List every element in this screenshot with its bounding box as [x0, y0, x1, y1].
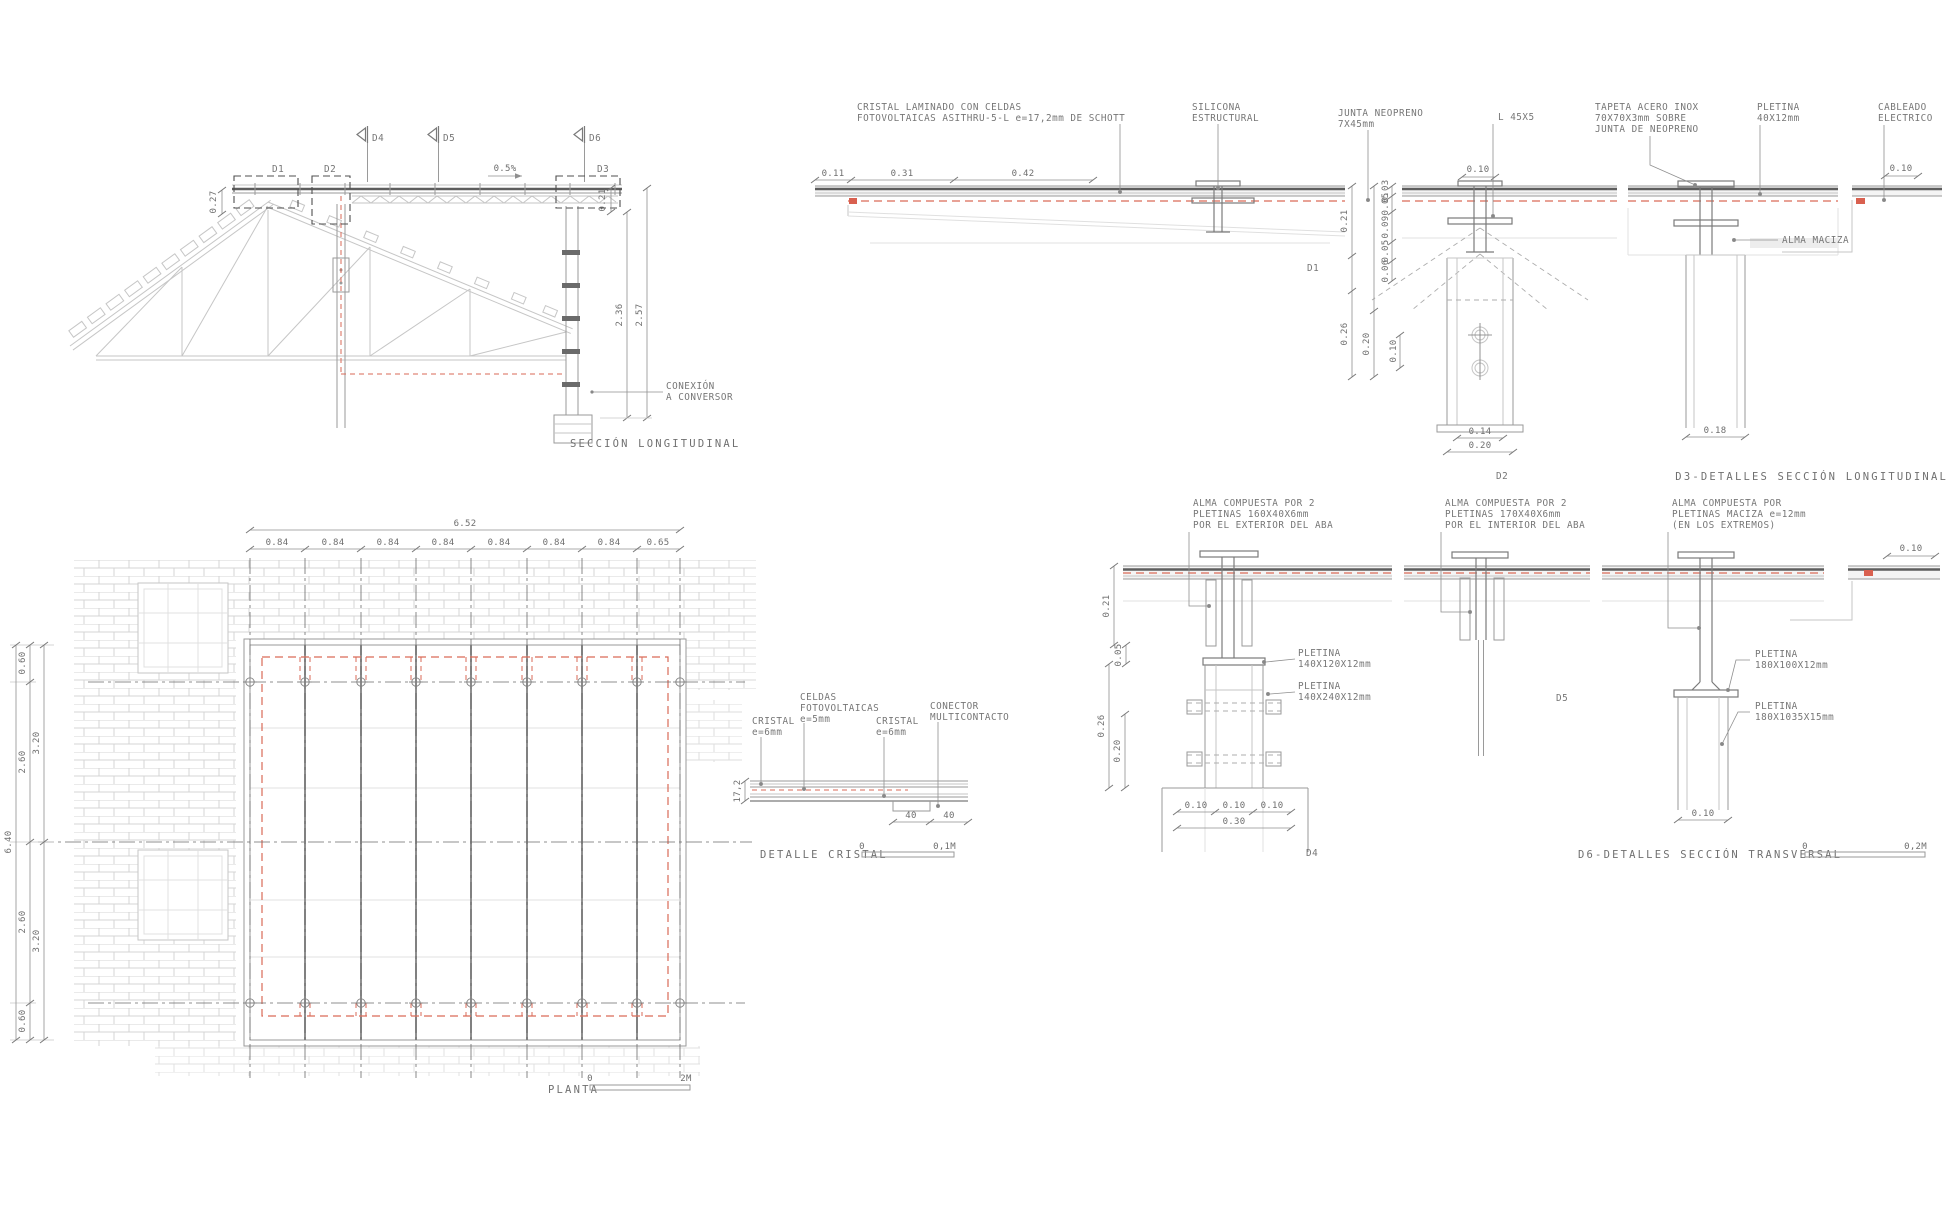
- dim-bay: 0.84: [266, 538, 289, 548]
- detail-boxes: D1 D2 D3: [234, 164, 620, 224]
- scale-end: 0,1M: [933, 842, 956, 852]
- skylight: [244, 639, 686, 1046]
- label-cristal-laminado-1: CRISTAL LAMINADO CON CELDAS: [857, 102, 1022, 113]
- detalles-seccion-longitudinal: CRISTAL LAMINADO CON CELDAS FOTOVOLTAICA…: [811, 102, 1948, 483]
- label-d5: D5: [1556, 693, 1568, 704]
- label-pletina-140-240-1: PLETINA: [1298, 681, 1341, 692]
- label-alma-int-3: POR EL INTERIOR DEL ABA: [1445, 520, 1585, 531]
- dim-left: 0.27: [209, 191, 219, 214]
- dim-010: 0.10: [1467, 165, 1490, 175]
- flag-d6-label: D6: [589, 133, 601, 144]
- label-celdas-3: e=5mm: [800, 714, 831, 725]
- scale-zero: 0: [587, 1074, 593, 1084]
- dim-half: 2.60: [18, 751, 28, 774]
- label-alma-mac-1: ALMA COMPUESTA POR: [1672, 498, 1782, 509]
- detalle-cristal: CELDAS FOTOVOLTAICAS e=5mm CRISTAL e=6mm…: [733, 692, 1009, 861]
- label-alma-ext-3: POR EL EXTERIOR DEL ABA: [1193, 520, 1333, 531]
- label-silicona-2: ESTRUCTURAL: [1192, 113, 1259, 124]
- dim-total-height: 6.40: [4, 831, 14, 854]
- dim-020: 0.20: [1362, 333, 1372, 356]
- column-symbols: [243, 675, 687, 1010]
- rafter-right: [266, 192, 577, 334]
- flag-d5-label: D5: [443, 133, 455, 144]
- label-tapeta-1: TAPETA ACERO INOX: [1595, 102, 1699, 113]
- planta-dims-top: 6.52 0.84 0.84 0.84 0.84 0.84 0.84 0.84 …: [246, 519, 684, 552]
- dim-010: 0.10: [1900, 544, 1923, 554]
- column-d3: [554, 206, 592, 443]
- dim-edge: 0.60: [18, 1010, 28, 1033]
- label-d2: D2: [1496, 471, 1508, 482]
- dim-edge: 0.60: [18, 652, 28, 675]
- planta-caption-group: PLANTA 0 2M: [548, 1074, 692, 1096]
- dim-mid: 3.20: [32, 732, 42, 755]
- dim-020: 0.20: [1469, 441, 1492, 451]
- label-pletina-1: PLETINA: [1757, 102, 1800, 113]
- d1-glass-segment: [815, 186, 1345, 243]
- row2-caption-group: D6-DETALLES SECCIÓN TRANSVERSAL 0 0,2M: [1578, 842, 1927, 861]
- seccion-longitudinal: D4 D5 D6 D1 D2 D3 0.5% 0.27 0.21 2.36 2.…: [62, 126, 740, 450]
- d6-detail: [1602, 552, 1824, 810]
- dim-bay: 0.84: [322, 538, 345, 548]
- label-pletina-2: 40X12mm: [1757, 113, 1800, 124]
- dim-mid: 3.20: [32, 930, 42, 953]
- conexion-annotation: CONEXIÓN A CONVERSOR: [590, 380, 733, 403]
- label-pletina-140-240-2: 140X240X12mm: [1298, 692, 1371, 703]
- dim-glass-depth: 0.21: [598, 189, 608, 212]
- dim-bay: 0.84: [488, 538, 511, 548]
- label-cristal-left-2: e=6mm: [752, 727, 783, 738]
- scale-zero: 0: [859, 842, 865, 852]
- section-caption: SECCIÓN LONGITUDINAL: [570, 437, 740, 450]
- dim-40: 40: [943, 811, 954, 821]
- label-alma-mac-3: (EN LOS EXTREMOS): [1672, 520, 1776, 531]
- label-alma-ext-1: ALMA COMPUESTA POR 2: [1193, 498, 1315, 509]
- pv-glass-roof: [232, 183, 622, 203]
- drawing-sheet: D4 D5 D6 D1 D2 D3 0.5% 0.27 0.21 2.36 2.…: [0, 0, 1960, 1209]
- label-alma-ext-2: PLETINAS 160X40X6mm: [1193, 509, 1309, 520]
- planta: 6.52 0.84 0.84 0.84 0.84 0.84 0.84 0.84 …: [4, 519, 756, 1096]
- label-alma-int-2: PLETINAS 170X40X6mm: [1445, 509, 1561, 520]
- d3-column: [1686, 255, 1745, 428]
- label-tapeta-3: JUNTA DE NEOPRENO: [1595, 124, 1699, 135]
- section-dimensions: 0.27 0.21 2.36 2.57: [209, 185, 652, 421]
- label-alma-int-1: ALMA COMPUESTA POR 2: [1445, 498, 1567, 509]
- slope-label: 0.5%: [494, 164, 517, 174]
- dim-bay: 0.84: [377, 538, 400, 548]
- label-pletina-180-1035-1: PLETINA: [1755, 701, 1798, 712]
- roof-slope-left: [62, 190, 273, 350]
- dim-thickness: 17,2: [733, 780, 743, 803]
- box-d1-label: D1: [272, 164, 284, 175]
- label-alma-maciza: ALMA MACIZA: [1782, 235, 1849, 246]
- detalles-seccion-transversal: ALMA COMPUESTA POR 2 PLETINAS 160X40X6mm…: [1097, 498, 1940, 861]
- row1-caption: D3-DETALLES SECCIÓN LONGITUDINAL: [1675, 470, 1948, 483]
- planta-dims-left: 6.40 0.60 2.60 2.60 0.60 3.20 3.20: [4, 642, 54, 1043]
- dim-bay: 0.84: [432, 538, 455, 548]
- label-pletina-180-1035-2: 180X1035X15mm: [1755, 712, 1834, 723]
- label-pletina-140-120-2: 140X120X12mm: [1298, 659, 1371, 670]
- label-cristal-left-1: CRISTAL: [752, 716, 795, 727]
- label-d4: D4: [1306, 848, 1318, 859]
- scale-end: 2M: [680, 1074, 692, 1084]
- label-celdas-2: FOTOVOLTAICAS: [800, 703, 879, 714]
- conexion-label-2: A CONVERSOR: [666, 392, 733, 403]
- label-celdas-1: CELDAS: [800, 692, 837, 703]
- dim-026: 0.26: [1097, 715, 1107, 738]
- label-tapeta-2: 70X70X3mm SOBRE: [1595, 113, 1686, 124]
- dim-005: 0.05: [1114, 644, 1124, 667]
- dim-026: 0.26: [1340, 323, 1350, 346]
- label-junta-2: 7X45mm: [1338, 119, 1375, 130]
- dim-010: 0.10: [1185, 801, 1208, 811]
- label-cableado-2: ELECTRICO: [1878, 113, 1933, 124]
- dim-010: 0.10: [1261, 801, 1284, 811]
- dim-total-width: 6.52: [454, 519, 477, 529]
- dim-018: 0.18: [1704, 426, 1727, 436]
- dim-006: 0.06: [1381, 260, 1391, 283]
- dim-height-1: 2.36: [615, 304, 625, 327]
- dim-020: 0.20: [1113, 740, 1123, 763]
- dim-011: 0.11: [822, 169, 845, 179]
- dim-last-bay: 0.65: [647, 538, 670, 548]
- dim-021: 0.21: [1102, 595, 1112, 618]
- dim-005: 0.05: [1381, 193, 1391, 216]
- dim-bay: 0.84: [598, 538, 621, 548]
- glass-layers: [750, 781, 968, 811]
- pv-zone-red: [262, 657, 668, 1016]
- slope-annotation: 0.5%: [488, 164, 522, 179]
- box-d2-label: D2: [324, 164, 336, 175]
- label-alma-mac-2: PLETINAS MACIZA e=12mm: [1672, 509, 1806, 520]
- cristal-leaders: [759, 722, 939, 808]
- dim-bay: 0.84: [543, 538, 566, 548]
- label-d1: D1: [1307, 263, 1319, 274]
- dim-014: 0.14: [1469, 427, 1492, 437]
- label-junta-1: JUNTA NEOPRENO: [1338, 108, 1423, 119]
- dim-010: 0.10: [1692, 809, 1715, 819]
- label-conector-2: MULTICONTACTO: [930, 712, 1009, 723]
- dim-height-2: 2.57: [635, 304, 645, 327]
- label-cristal-right-2: e=6mm: [876, 727, 907, 738]
- label-conector-1: CONECTOR: [930, 701, 979, 712]
- label-silicona-1: SILICONA: [1192, 102, 1241, 113]
- dim-010: 0.10: [1890, 164, 1913, 174]
- conexion-label-1: CONEXIÓN: [666, 380, 715, 392]
- dim-010: 0.10: [1389, 340, 1399, 363]
- dim-031: 0.31: [891, 169, 914, 179]
- d2-dashed-bracing: [1372, 228, 1588, 310]
- label-cableado-1: CABLEADO: [1878, 102, 1927, 113]
- d2-column: [1437, 258, 1523, 432]
- dim-009: 0.09: [1381, 216, 1391, 239]
- truss-lines: [96, 206, 566, 360]
- scale-zero: 0: [1802, 842, 1808, 852]
- label-l45: L 45X5: [1498, 112, 1535, 123]
- label-pletina-180-100-2: 180X100X12mm: [1755, 660, 1828, 671]
- dim-40: 40: [905, 811, 916, 821]
- d5-detail: [1404, 552, 1590, 756]
- dim-half: 2.60: [18, 911, 28, 934]
- row1-dims: 0.11 0.31 0.42 0.10 0.10 0.21 0.03 0.05 …: [811, 164, 1922, 455]
- cristal-caption-group: DETALLE CRISTAL 0 0,1M: [760, 842, 956, 861]
- cristal-caption: DETALLE CRISTAL: [760, 849, 888, 861]
- label-pletina-140-120-1: PLETINA: [1298, 648, 1341, 659]
- detail-flags: D4 D5 D6: [357, 126, 601, 182]
- dim-021: 0.21: [1340, 210, 1350, 233]
- dim-010: 0.10: [1223, 801, 1246, 811]
- dim-005: 0.05: [1381, 240, 1391, 263]
- scale-end: 0,2M: [1904, 842, 1927, 852]
- box-d3-label: D3: [597, 164, 609, 175]
- dim-030: 0.30: [1223, 817, 1246, 827]
- label-cristal-right-1: CRISTAL: [876, 716, 919, 727]
- label-pletina-180-100-1: PLETINA: [1755, 649, 1798, 660]
- label-cristal-laminado-2: FOTOVOLTAICAS ASITHRU-5-L e=17,2mm DE SC…: [857, 113, 1125, 124]
- flag-d4-label: D4: [372, 133, 384, 144]
- d2-glass-segment: [1402, 186, 1617, 238]
- dim-042: 0.42: [1012, 169, 1035, 179]
